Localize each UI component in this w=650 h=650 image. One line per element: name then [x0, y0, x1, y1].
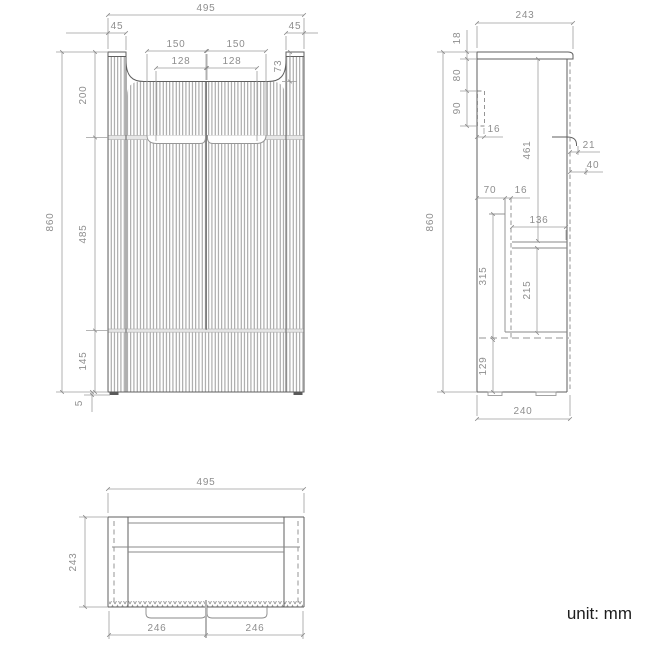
- side-dim-drawer-box-height: 315: [479, 266, 489, 285]
- front-view-structure: [108, 52, 304, 395]
- front-dim-foot-height: 5: [75, 400, 85, 406]
- side-dim-handle-height: 40: [587, 161, 600, 171]
- side-dim-rail-thickness: 16: [488, 125, 501, 135]
- side-dim-top-thickness: 18: [453, 32, 463, 45]
- side-dim-drawer-depth: 136: [529, 216, 548, 226]
- side-dim-total-height: 860: [426, 212, 436, 231]
- side-dim-back-offset: 70: [484, 186, 497, 196]
- side-dim-inner-drawer-height: 215: [523, 280, 533, 299]
- front-dim-middle-section: 485: [79, 224, 89, 243]
- side-wall-rail-hidden: [478, 91, 485, 126]
- side-view-dimensions: [437, 23, 603, 419]
- top-left-handle-recess: [146, 607, 206, 618]
- front-dim-right-handle-outer: 150: [226, 40, 245, 50]
- side-back-foot: [488, 392, 502, 396]
- top-dim-total-width: 495: [196, 478, 215, 488]
- side-dim-rail-height: 90: [453, 102, 463, 115]
- front-right-foot: [294, 392, 303, 395]
- unit-note: unit: mm: [567, 604, 632, 624]
- side-dim-bottom-clearance: 129: [479, 356, 489, 375]
- side-view-structure: [477, 52, 577, 396]
- front-right-post-fluting: [287, 56, 304, 392]
- top-dim-right-door-width: 246: [245, 624, 264, 634]
- side-dim-handle-depth: 21: [583, 141, 596, 151]
- side-dim-top-depth: 243: [515, 11, 534, 21]
- top-dim-total-depth: 243: [69, 552, 79, 571]
- front-dim-top-section: 200: [79, 85, 89, 104]
- front-dim-left-handle-outer: 150: [166, 40, 185, 50]
- front-dim-total-height: 860: [46, 212, 56, 231]
- front-dim-bottom-section: 145: [79, 351, 89, 370]
- side-front-foot: [536, 392, 556, 396]
- front-dim-post-above-top: 73: [274, 60, 284, 73]
- side-dim-panel-thickness: 16: [515, 186, 528, 196]
- side-top-panel: [477, 52, 573, 59]
- side-handle-profile: [567, 137, 577, 146]
- side-dim-bottom-depth: 240: [513, 407, 532, 417]
- front-left-post-fluting: [109, 56, 126, 392]
- front-dim-right-post: 45: [289, 22, 302, 32]
- top-right-handle-recess: [207, 607, 267, 618]
- front-dim-right-handle-inner: 128: [222, 57, 241, 67]
- side-dim-gap-below-top: 80: [453, 69, 463, 82]
- front-dim-left-post: 45: [111, 22, 124, 32]
- front-dim-total-width: 495: [196, 4, 215, 14]
- technical-drawing-canvas: 495 45 45 150 150 128 128 73 200 860 485…: [0, 0, 650, 650]
- front-left-foot: [110, 392, 119, 395]
- drawing-linework: [0, 0, 650, 650]
- front-dim-left-handle-inner: 128: [171, 57, 190, 67]
- top-view-dimensions: [79, 489, 304, 639]
- side-dim-interior-height: 461: [523, 140, 533, 159]
- top-view-structure: [108, 517, 304, 638]
- top-dim-left-door-width: 246: [147, 624, 166, 634]
